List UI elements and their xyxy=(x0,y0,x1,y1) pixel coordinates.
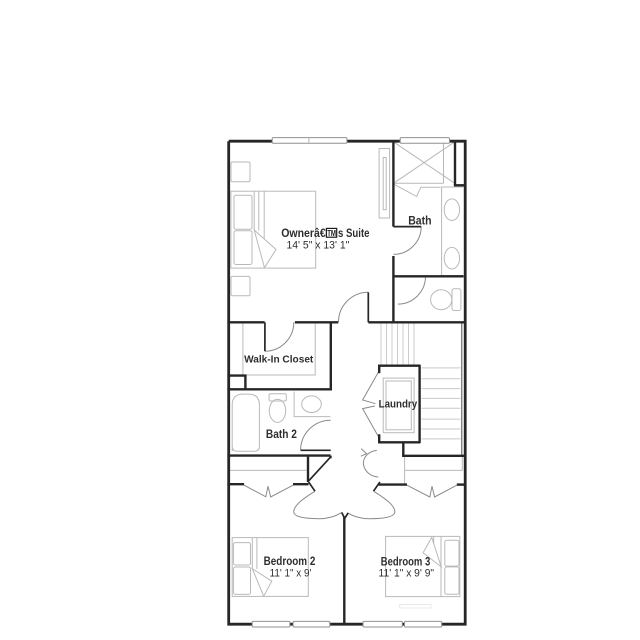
svg-text:Bedroom 2: Bedroom 2 xyxy=(264,556,316,568)
svg-text:Bath 2: Bath 2 xyxy=(266,429,297,441)
svg-text:Laundry: Laundry xyxy=(379,398,418,410)
svg-text:Ownerâ€: Ownerâ€ xyxy=(281,228,326,240)
svg-text:14' 5" x 13' 1": 14' 5" x 13' 1" xyxy=(286,239,349,251)
svg-text:Bath: Bath xyxy=(408,215,431,227)
svg-text:11' 1" x 9': 11' 1" x 9' xyxy=(270,568,312,580)
svg-text:Bedroom 3: Bedroom 3 xyxy=(381,556,431,568)
svg-text:s Suite: s Suite xyxy=(338,228,370,240)
svg-text:Walk-In Closet: Walk-In Closet xyxy=(244,354,314,366)
svg-text:TM: TM xyxy=(327,228,336,238)
svg-text:11' 1" x 9' 9": 11' 1" x 9' 9" xyxy=(379,568,435,580)
